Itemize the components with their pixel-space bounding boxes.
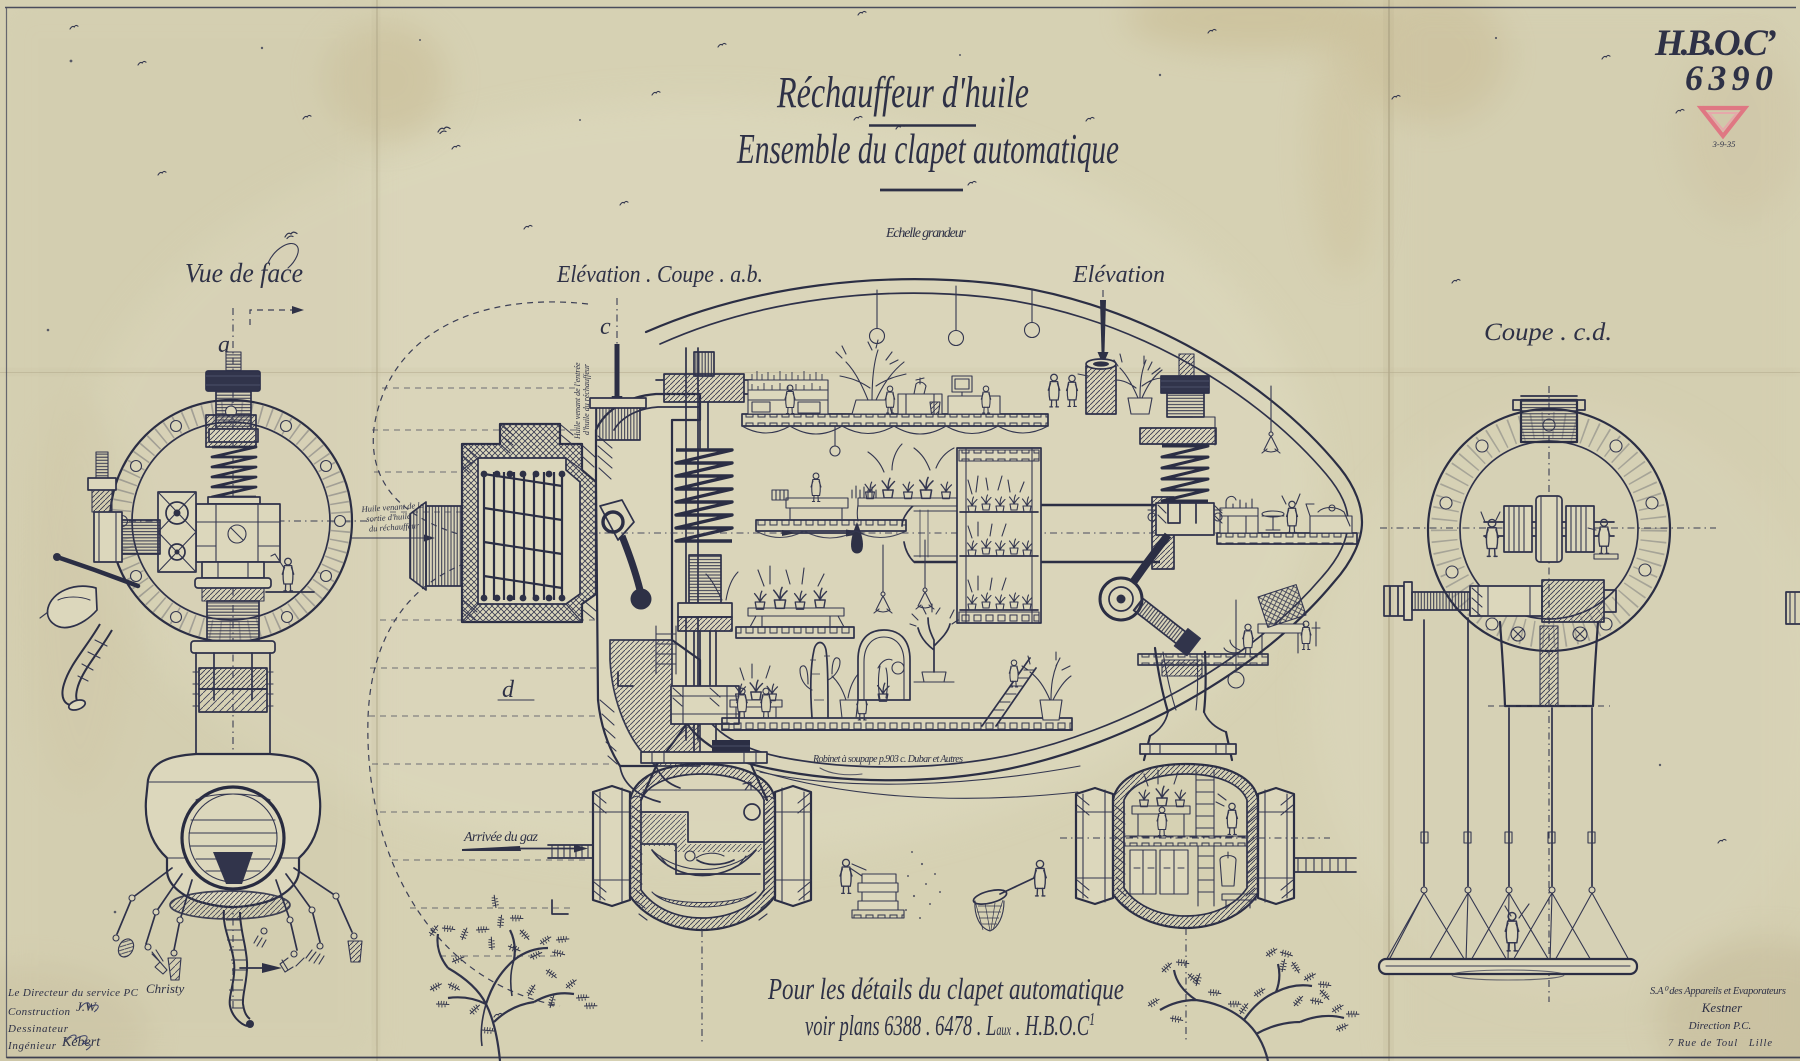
- svg-text:c: c: [600, 314, 611, 340]
- svg-text:Pour les détails du clapet aut: Pour les détails du clapet automatique: [767, 971, 1124, 1006]
- svg-text:Ensemble du clapet automatique: Ensemble du clapet automatique: [736, 127, 1119, 173]
- svg-text:Dessinateur: Dessinateur: [7, 1023, 69, 1035]
- svg-text:Echelle grandeur: Echelle grandeur: [885, 226, 967, 241]
- svg-text:Construction: Construction: [8, 1006, 71, 1018]
- svg-text:Robinet à soupape p.903 c. Dub: Robinet à soupape p.903 c. Dubar et Autr…: [812, 754, 963, 765]
- svg-text:S.A⁰ des Appareils et Evaporat: S.A⁰ des Appareils et Evaporateurs: [1650, 986, 1786, 997]
- svg-text:Elévation: Elévation: [1072, 262, 1165, 288]
- svg-text:d: d: [502, 677, 515, 703]
- svg-text:Huile venant de l'entrée: Huile venant de l'entrée: [573, 362, 582, 440]
- svg-text:Elévation . Coupe . a.b.: Elévation . Coupe . a.b.: [556, 262, 763, 288]
- svg-text:Arrivée du gaz: Arrivée du gaz: [463, 830, 539, 845]
- svg-text:Kestner: Kestner: [1701, 1000, 1743, 1015]
- svg-text:Vue de face: Vue de face: [185, 258, 303, 288]
- svg-text:Ingénieur: Ingénieur: [7, 1040, 57, 1052]
- svg-text:3-9-35: 3-9-35: [1712, 139, 1736, 149]
- svg-text:7 Rue de Toul Lille: 7 Rue de Toul Lille: [1668, 1038, 1772, 1049]
- svg-text:Réchauffeur d'huile: Réchauffeur d'huile: [776, 68, 1029, 117]
- svg-text:Coupe . c.d.: Coupe . c.d.: [1484, 319, 1612, 346]
- svg-text:Direction P.C.: Direction P.C.: [1688, 1020, 1752, 1032]
- svg-text:Christy: Christy: [146, 981, 185, 996]
- svg-text:Kebert: Kebert: [61, 1035, 101, 1050]
- svg-text:voir plans 6388 . 6478 . Laux: voir plans 6388 . 6478 . Laux . H.B.O.C1: [805, 1009, 1095, 1042]
- svg-text:Le Directeur du service PC: Le Directeur du service PC: [7, 987, 139, 999]
